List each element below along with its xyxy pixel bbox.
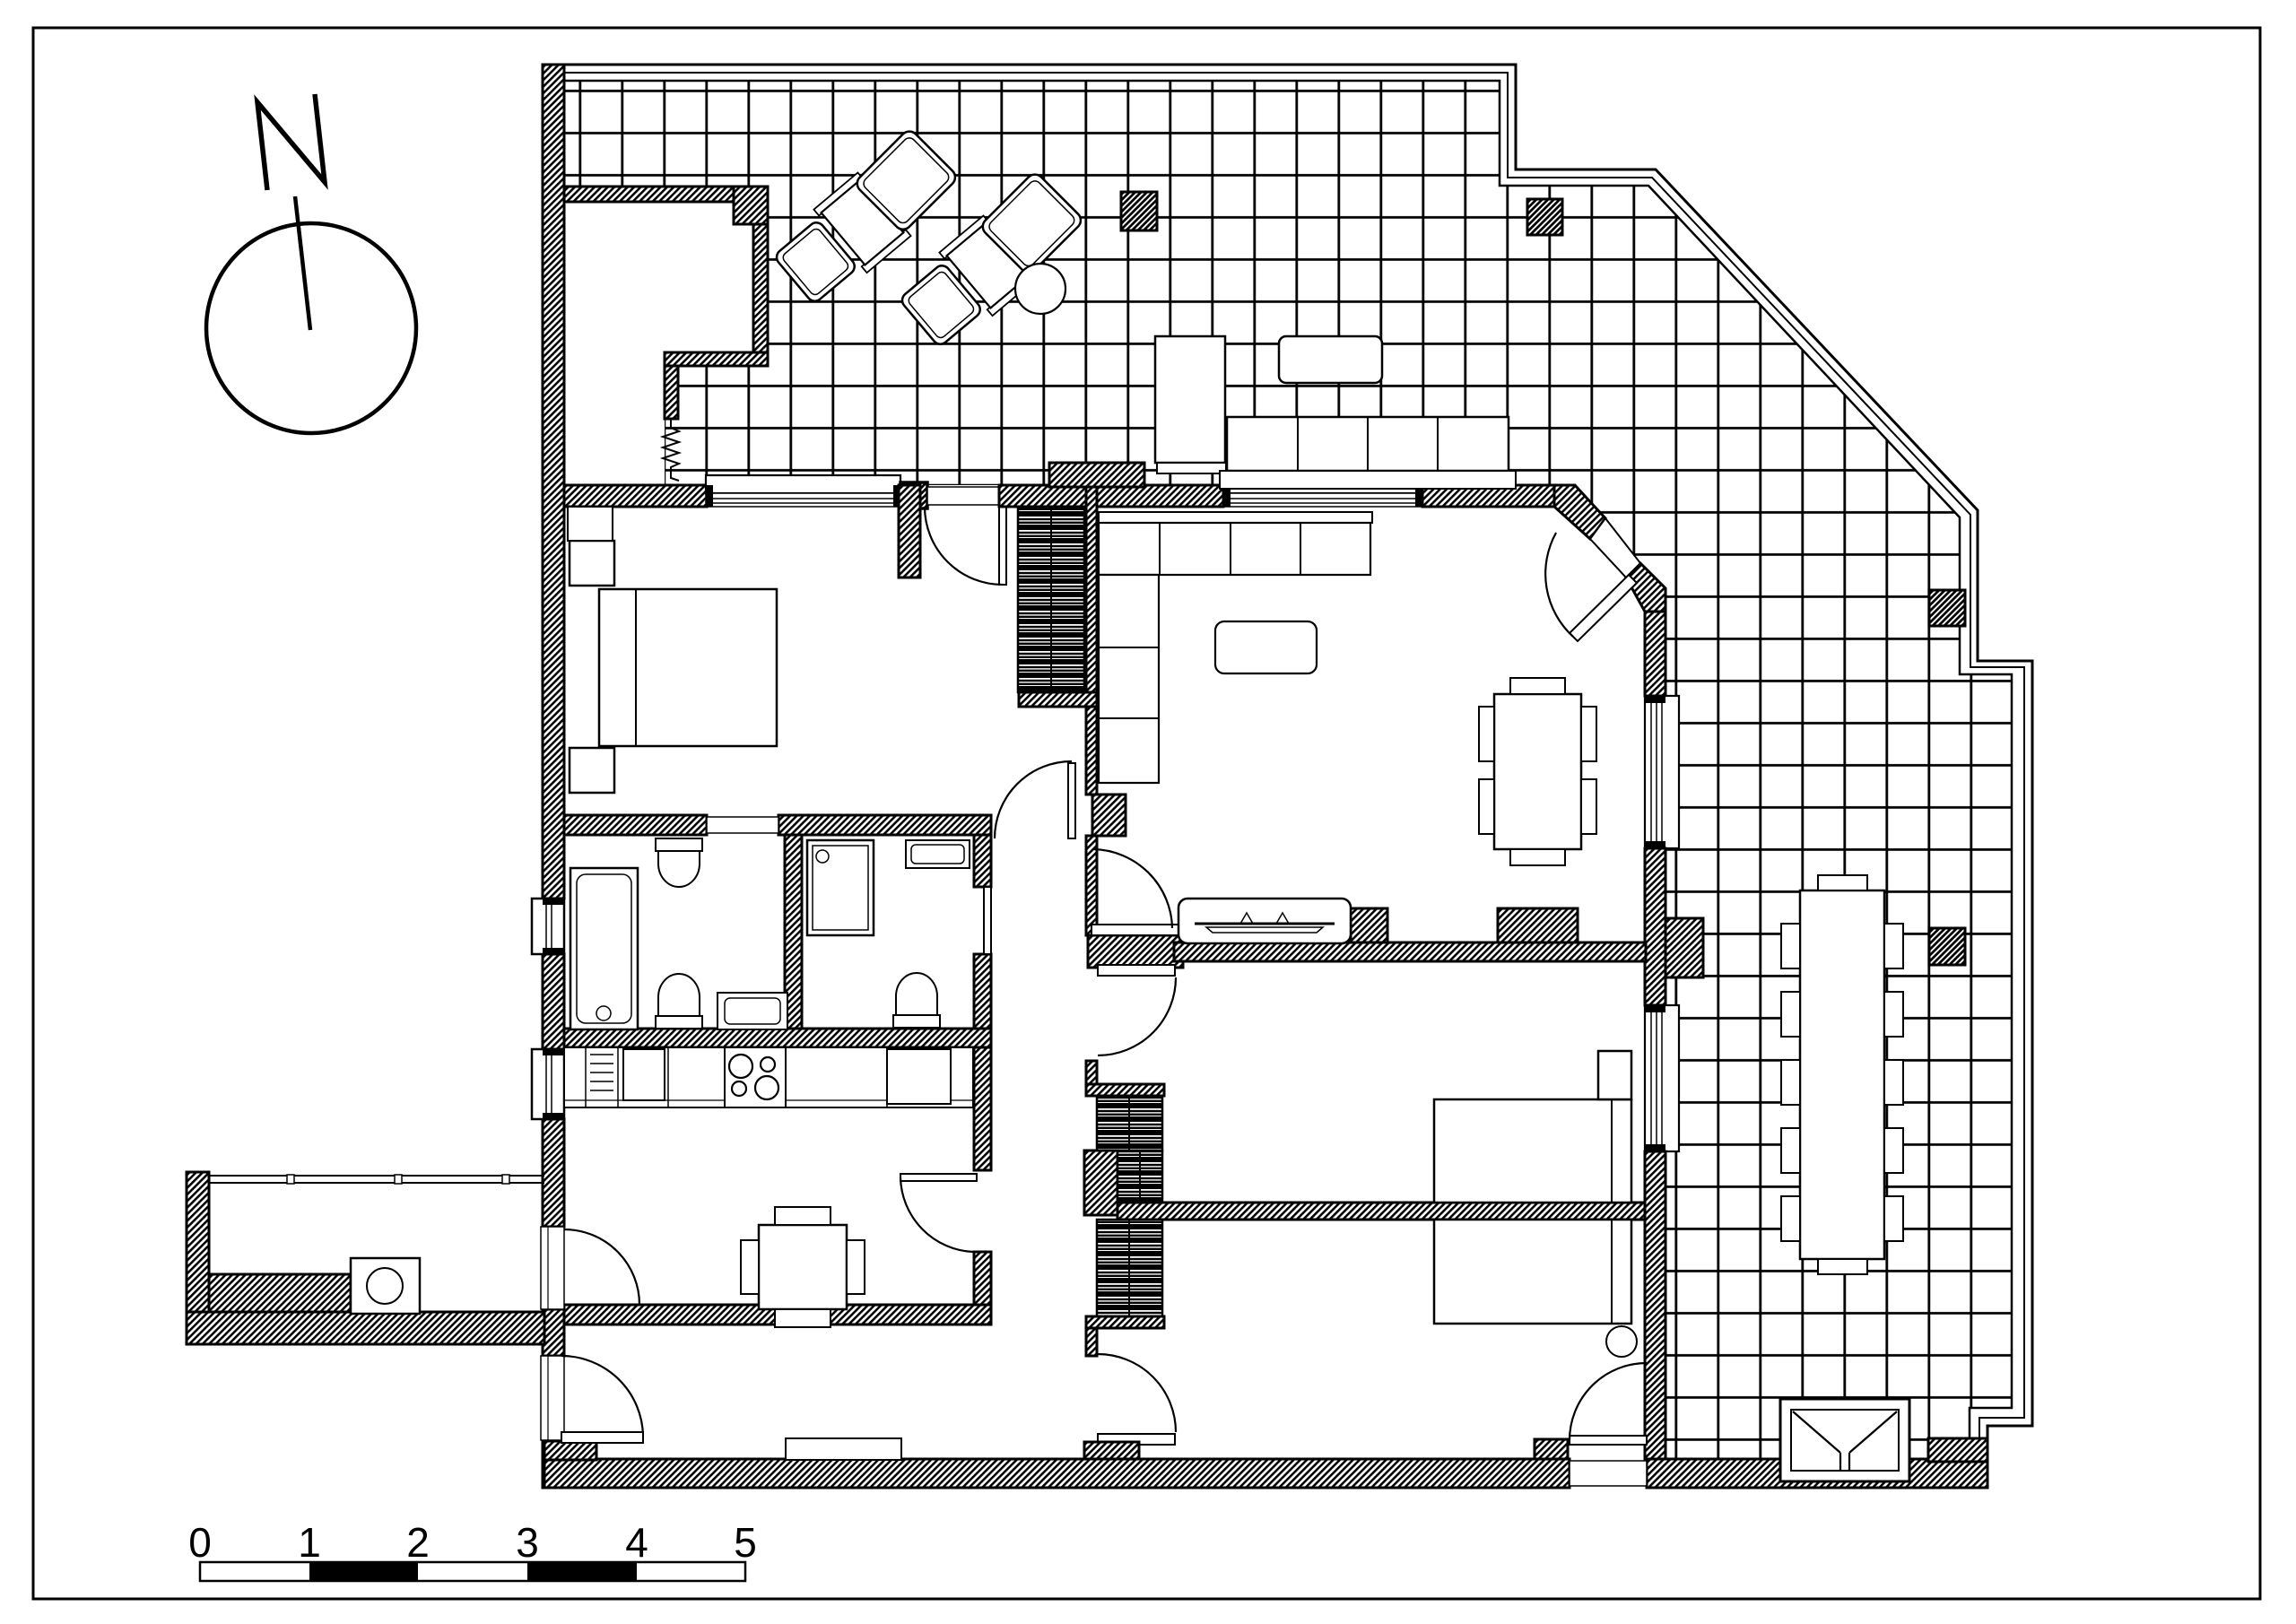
- svg-text:5: 5: [734, 1519, 757, 1566]
- svg-text:0: 0: [188, 1519, 212, 1566]
- svg-text:3: 3: [516, 1519, 539, 1566]
- svg-text:2: 2: [406, 1519, 430, 1566]
- svg-text:1: 1: [298, 1519, 321, 1566]
- svg-text:4: 4: [625, 1519, 648, 1566]
